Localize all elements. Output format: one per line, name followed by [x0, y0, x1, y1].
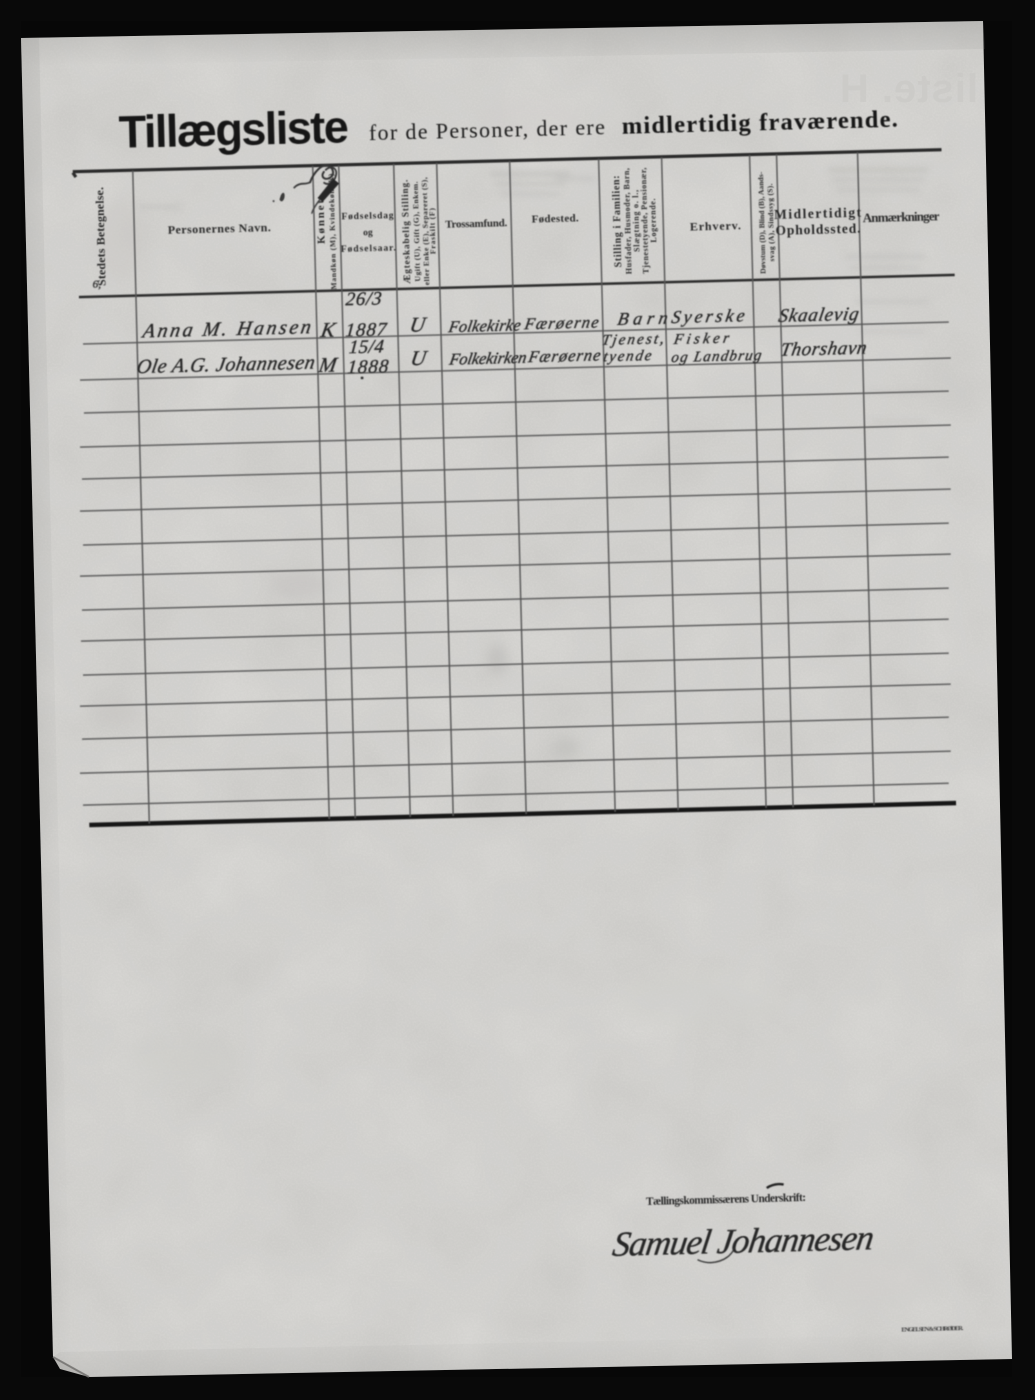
svg-text:Samuel Johannesen: Samuel Johannesen: [610, 1218, 877, 1263]
svg-text:Anmærkninger: Anmærkninger: [863, 208, 940, 225]
svg-text:Tillægsliste: Tillægsliste: [118, 101, 349, 158]
svg-text:og: og: [363, 228, 373, 238]
svg-text:Fødested.: Fødested.: [531, 212, 579, 225]
svg-text:Ole A.G. Johannesen: Ole A.G. Johannesen: [135, 352, 317, 378]
svg-text:Trossamfund.: Trossamfund.: [445, 217, 508, 231]
svg-text:15/4: 15/4: [348, 336, 385, 358]
svg-text:Folkekirken: Folkekirken: [447, 348, 528, 369]
svg-text:Thorshavn: Thorshavn: [779, 338, 868, 361]
svg-text:Fødselsdag: Fødselsdag: [341, 211, 393, 222]
svg-text:Folkekirke: Folkekirke: [446, 315, 523, 336]
svg-text:1888: 1888: [347, 356, 390, 378]
svg-text:Stedets Betegnelse.: Stedets Betegnelse.: [92, 187, 109, 286]
svg-text:Fraskilt (F): Fraskilt (F): [427, 208, 437, 255]
svg-text:Logerende.: Logerende.: [648, 198, 658, 242]
svg-text:Opholdssted.: Opholdssted.: [775, 221, 860, 238]
svg-text:Erhverv.: Erhverv.: [690, 218, 741, 233]
svg-text:Skaalevig: Skaalevig: [777, 304, 861, 327]
svg-text:Fødselsaar.: Fødselsaar.: [341, 244, 396, 255]
svg-text:Færøerne: Færøerne: [526, 345, 603, 366]
svg-text:tyende: tyende: [602, 348, 653, 365]
svg-text:liste. H: liste. H: [839, 67, 978, 111]
svg-text:og Landbrug: og Landbrug: [670, 348, 763, 366]
svg-text:26/3: 26/3: [345, 288, 383, 310]
svg-text:Personernes Navn.: Personernes Navn.: [168, 220, 271, 237]
svg-text:6,: 6,: [92, 279, 101, 291]
svg-text:Kønnet: Kønnet: [315, 199, 328, 244]
